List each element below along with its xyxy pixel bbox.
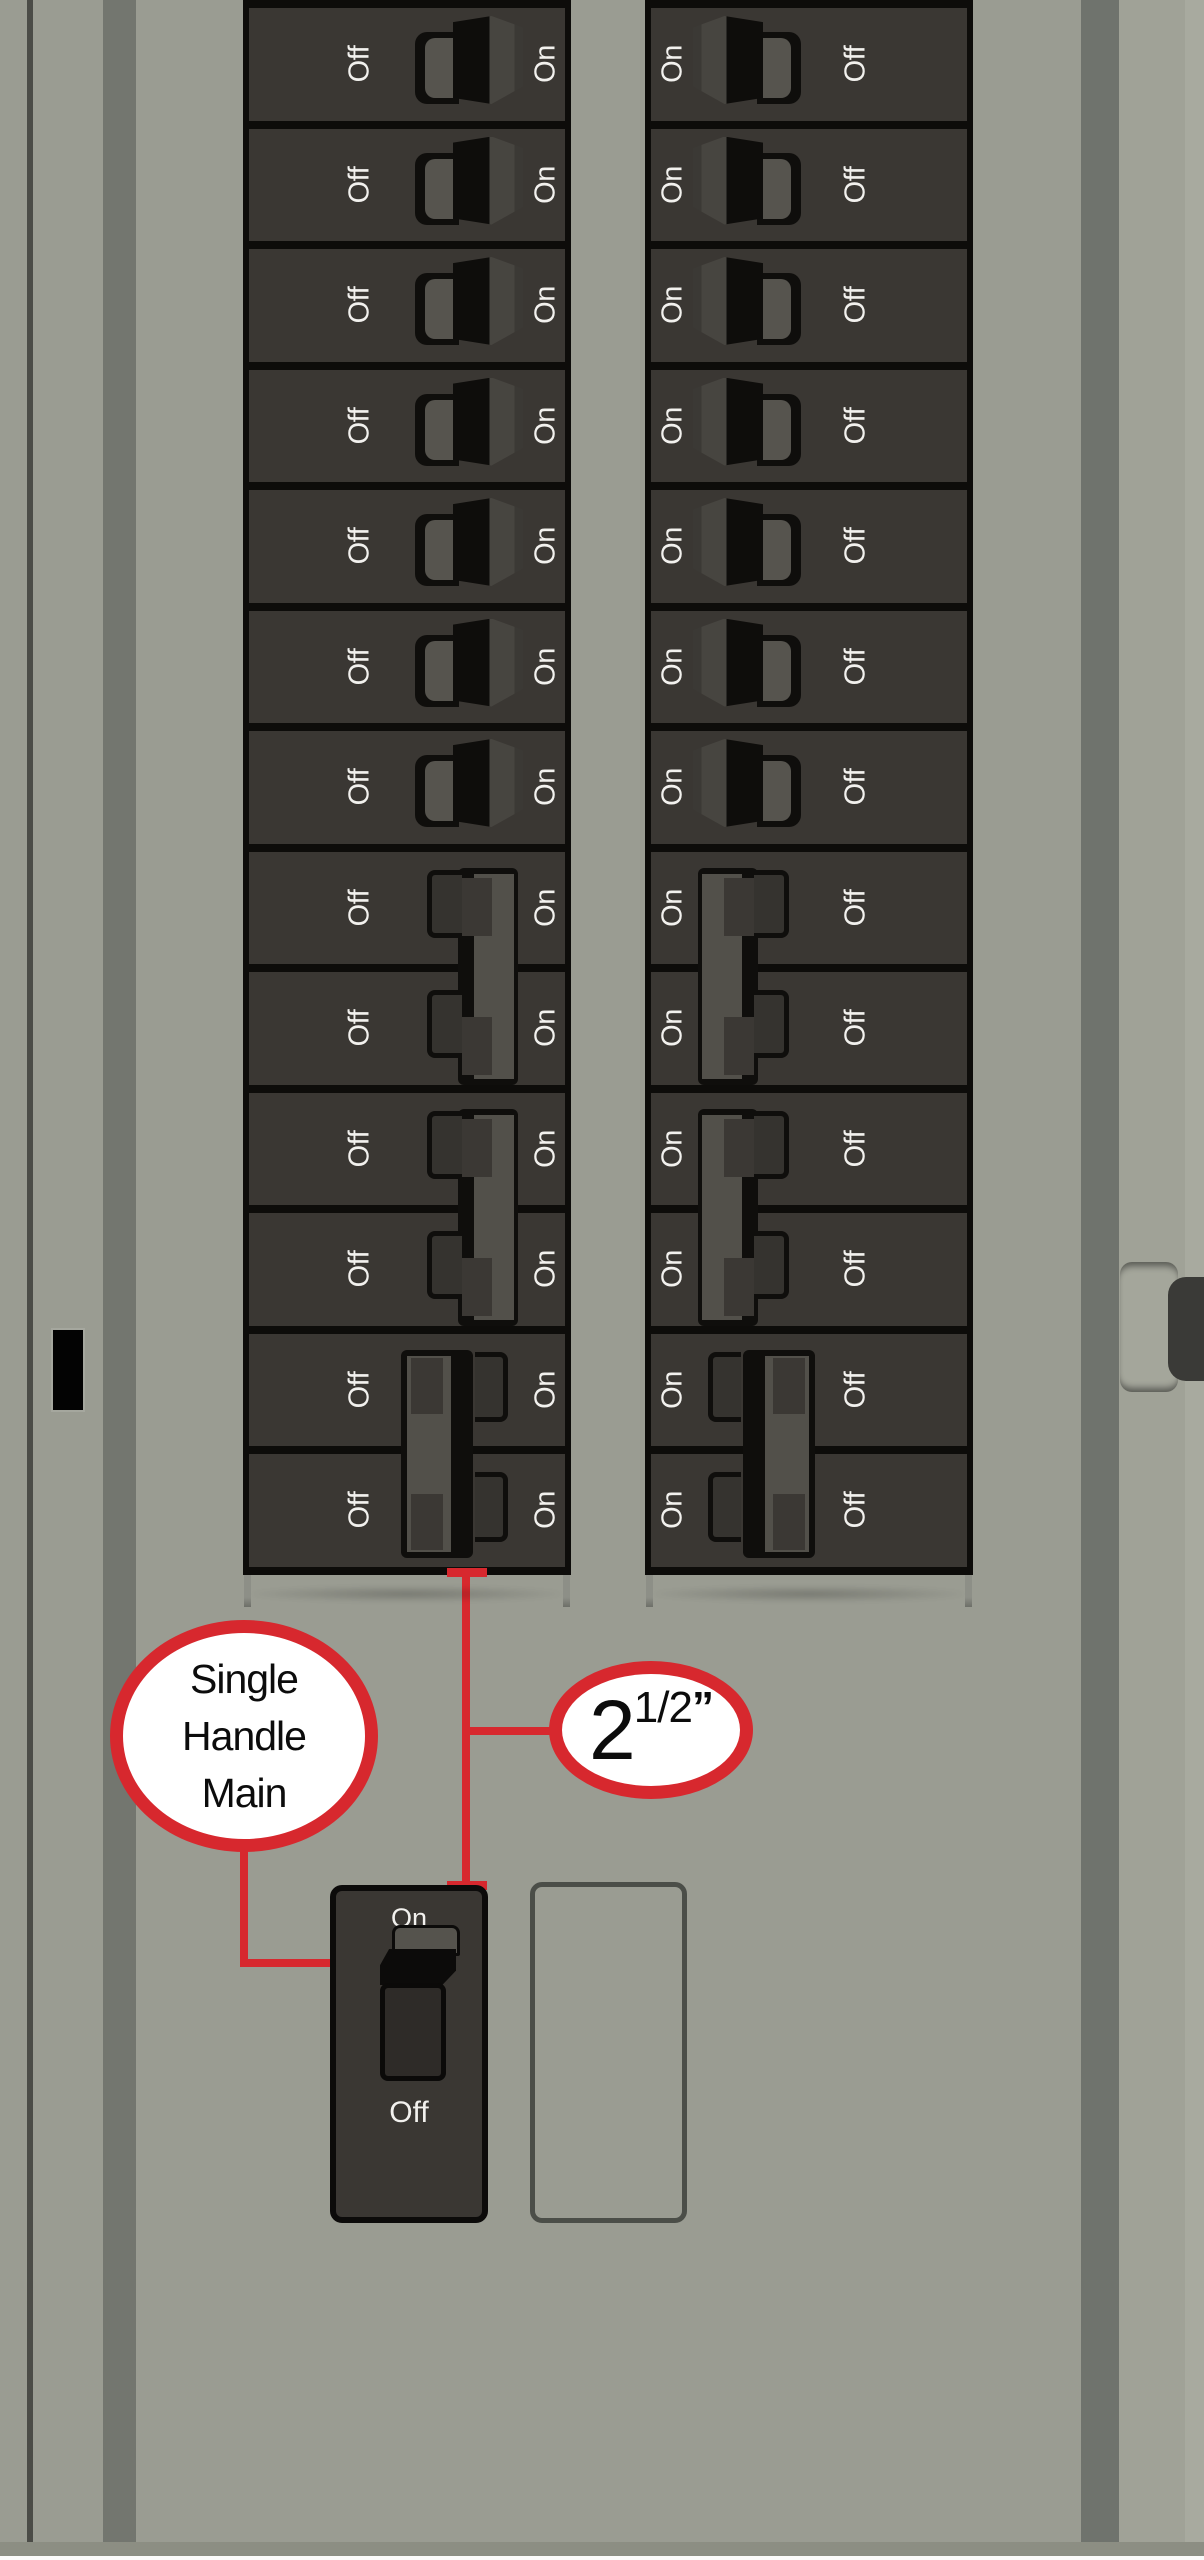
breaker-row[interactable]: OffOn: [243, 1334, 571, 1455]
breaker-row[interactable]: OnOff: [645, 611, 973, 732]
breaker-panel-illustration: OffOnOffOnOffOnOffOnOffOnOffOnOffOnOffOn…: [0, 0, 1204, 2560]
breaker-handle-layer: [249, 611, 565, 724]
breaker-toggle-slot: [415, 514, 459, 586]
column-shadow: [253, 1586, 561, 1602]
breaker-toggle-slot: [415, 755, 459, 827]
measurement-value: 2: [589, 1688, 634, 1772]
handle-tab[interactable]: [427, 870, 462, 938]
column-shadow: [655, 1586, 963, 1602]
breaker-toggle-slot-face: [425, 279, 453, 339]
breaker-toggle-handle[interactable]: [693, 137, 763, 225]
breaker-toggle-slot-face: [763, 761, 791, 821]
handle-tab[interactable]: [427, 990, 462, 1058]
breaker-handle-layer: [651, 1093, 967, 1206]
breaker-handle-layer: [249, 1334, 565, 1447]
breaker-toggle-handle[interactable]: [693, 378, 763, 466]
breaker-handle-layer: [651, 972, 967, 1085]
handle-tab[interactable]: [708, 1352, 741, 1422]
breaker-row[interactable]: OnOff: [645, 972, 973, 1093]
breaker-toggle-slot: [415, 394, 459, 466]
breaker-handle-layer: [651, 731, 967, 844]
breaker-toggle-handle[interactable]: [453, 257, 523, 345]
breaker-handle-layer: [651, 490, 967, 603]
column-leg: [563, 1575, 570, 1607]
callout-text-line2: Handle: [182, 1708, 306, 1765]
breaker-row[interactable]: OffOn: [243, 1093, 571, 1214]
breaker-toggle-handle[interactable]: [453, 739, 523, 827]
breaker-handle-layer: [651, 249, 967, 362]
breaker-toggle-slot-face: [763, 400, 791, 460]
column-top-edge: [645, 0, 973, 8]
breaker-handle-layer: [249, 1454, 565, 1567]
breaker-row[interactable]: OnOff: [645, 1213, 973, 1334]
breaker-row[interactable]: OnOff: [645, 731, 973, 852]
callout-text-line3: Main: [202, 1765, 287, 1822]
handle-tab[interactable]: [427, 1111, 462, 1179]
breaker-toggle-slot-face: [763, 520, 791, 580]
breaker-toggle-handle[interactable]: [453, 137, 523, 225]
breaker-toggle-slot-face: [763, 641, 791, 701]
breaker-toggle-handle[interactable]: [693, 739, 763, 827]
callout-measurement: 21/2”: [549, 1661, 753, 1799]
measurement-fraction: 1/2: [634, 1683, 692, 1732]
measurement-text: 21/2”: [589, 1688, 713, 1772]
main-breaker-handle-body: [380, 1949, 456, 1985]
door-left-edge-strip: [103, 0, 136, 2556]
handle-tab[interactable]: [475, 1352, 508, 1422]
breaker-handle-layer: [249, 249, 565, 362]
cabinet-bottom-edge: [0, 2542, 1204, 2556]
tie-bar-inset-top: [462, 1119, 492, 1177]
breaker-toggle-slot-face: [425, 159, 453, 219]
breaker-toggle-handle[interactable]: [453, 378, 523, 466]
handle-tab[interactable]: [754, 990, 789, 1058]
breaker-toggle-slot-face: [425, 520, 453, 580]
breaker-row[interactable]: OnOff: [645, 852, 973, 973]
handle-tab[interactable]: [475, 1472, 508, 1542]
door-left-seam: [27, 0, 33, 2556]
handle-tab[interactable]: [427, 1231, 462, 1299]
breaker-toggle-slot: [415, 153, 459, 225]
handle-tab[interactable]: [754, 870, 789, 938]
breaker-toggle-slot-face: [763, 279, 791, 339]
breaker-row[interactable]: OnOff: [645, 249, 973, 370]
breaker-handle-layer: [651, 370, 967, 483]
image-bottom-border: [0, 2556, 1204, 2560]
breaker-toggle-slot: [415, 32, 459, 104]
breaker-row[interactable]: OnOff: [645, 1334, 973, 1455]
breaker-toggle-slot-face: [425, 400, 453, 460]
breaker-column-left: OffOnOffOnOffOnOffOnOffOnOffOnOffOnOffOn…: [243, 0, 571, 1575]
breaker-toggle-slot: [415, 273, 459, 345]
breaker-handle-layer: [651, 1213, 967, 1326]
breaker-handle-layer: [249, 731, 565, 844]
breaker-row[interactable]: OnOff: [645, 8, 973, 129]
column-top-edge: [243, 0, 571, 8]
empty-breaker-slot: [530, 1882, 687, 2223]
breaker-row[interactable]: OffOn: [243, 972, 571, 1093]
breaker-toggle-handle[interactable]: [693, 16, 763, 104]
breaker-row[interactable]: OnOff: [645, 1454, 973, 1575]
handle-tab[interactable]: [754, 1111, 789, 1179]
breaker-toggle-slot: [757, 755, 801, 827]
tie-bar-inset-top: [411, 1358, 443, 1414]
breaker-handle-layer: [651, 611, 967, 724]
door-latch-slot: [53, 1330, 83, 1410]
tie-bar-inset-top: [724, 1119, 754, 1177]
breaker-row[interactable]: OffOn: [243, 8, 571, 129]
handle-tab[interactable]: [754, 1231, 789, 1299]
tie-bar-inset-top: [462, 878, 492, 936]
breaker-handle-layer: [651, 1454, 967, 1567]
breaker-handle-layer: [651, 8, 967, 121]
breaker-toggle-slot: [757, 32, 801, 104]
tie-bar-inset-top: [773, 1358, 805, 1414]
breaker-handle-layer: [249, 852, 565, 965]
main-breaker-slot: [380, 1983, 446, 2081]
breaker-row[interactable]: OffOn: [243, 490, 571, 611]
breaker-toggle-handle[interactable]: [453, 16, 523, 104]
callout-text-line1: Single: [190, 1651, 298, 1708]
callout-single-handle-main: Single Handle Main: [110, 1620, 378, 1852]
breaker-toggle-slot-face: [763, 38, 791, 98]
breaker-handle-layer: [249, 1213, 565, 1326]
callout-line-vertical: [240, 1848, 248, 1967]
handle-tab[interactable]: [708, 1472, 741, 1542]
breaker-toggle-slot-face: [763, 159, 791, 219]
breaker-toggle-slot: [757, 153, 801, 225]
breaker-toggle-handle[interactable]: [453, 619, 523, 707]
breaker-handle-layer: [651, 1334, 967, 1447]
column-leg: [244, 1575, 251, 1607]
breaker-row[interactable]: OnOff: [645, 370, 973, 491]
measurement-unit: ”: [692, 1683, 713, 1732]
breaker-handle-layer: [249, 972, 565, 1085]
breaker-toggle-slot-face: [425, 641, 453, 701]
door-right-edge-strip: [1081, 0, 1119, 2556]
breaker-toggle-handle[interactable]: [693, 498, 763, 586]
breaker-toggle-slot: [757, 514, 801, 586]
column-leg: [646, 1575, 653, 1607]
breaker-toggle-slot: [415, 635, 459, 707]
breaker-row[interactable]: OffOn: [243, 611, 571, 732]
breaker-toggle-slot: [757, 635, 801, 707]
breaker-handle-layer: [249, 1093, 565, 1206]
breaker-row[interactable]: OnOff: [645, 490, 973, 611]
breaker-row[interactable]: OnOff: [645, 1093, 973, 1214]
breaker-toggle-slot: [757, 394, 801, 466]
breaker-row[interactable]: OffOn: [243, 1213, 571, 1334]
breaker-row[interactable]: OffOn: [243, 249, 571, 370]
breaker-toggle-slot: [757, 273, 801, 345]
measure-line-to-oval: [466, 1727, 552, 1735]
breaker-row[interactable]: OffOn: [243, 731, 571, 852]
tie-bar-inset-top: [724, 878, 754, 936]
breaker-row[interactable]: OffOn: [243, 129, 571, 250]
breaker-row[interactable]: OnOff: [645, 129, 973, 250]
column-leg: [965, 1575, 972, 1607]
breaker-handle-layer: [249, 370, 565, 483]
breaker-handle-layer: [249, 129, 565, 242]
main-breaker-off-label: Off: [336, 2096, 482, 2130]
main-breaker[interactable]: On Off: [330, 1885, 488, 2223]
breaker-toggle-handle[interactable]: [693, 257, 763, 345]
breaker-toggle-handle[interactable]: [693, 619, 763, 707]
breaker-handle-layer: [651, 129, 967, 242]
door-handle-grip[interactable]: [1168, 1277, 1204, 1381]
breaker-handle-layer: [651, 852, 967, 965]
breaker-toggle-handle[interactable]: [453, 498, 523, 586]
breaker-column-right: OnOffOnOffOnOffOnOffOnOffOnOffOnOffOnOff…: [645, 0, 973, 1575]
breaker-row[interactable]: OffOn: [243, 852, 571, 973]
breaker-handle-layer: [249, 490, 565, 603]
breaker-handle-layer: [249, 8, 565, 121]
breaker-row[interactable]: OffOn: [243, 1454, 571, 1575]
breaker-toggle-slot-face: [425, 38, 453, 98]
breaker-toggle-slot-face: [425, 761, 453, 821]
breaker-row[interactable]: OffOn: [243, 370, 571, 491]
